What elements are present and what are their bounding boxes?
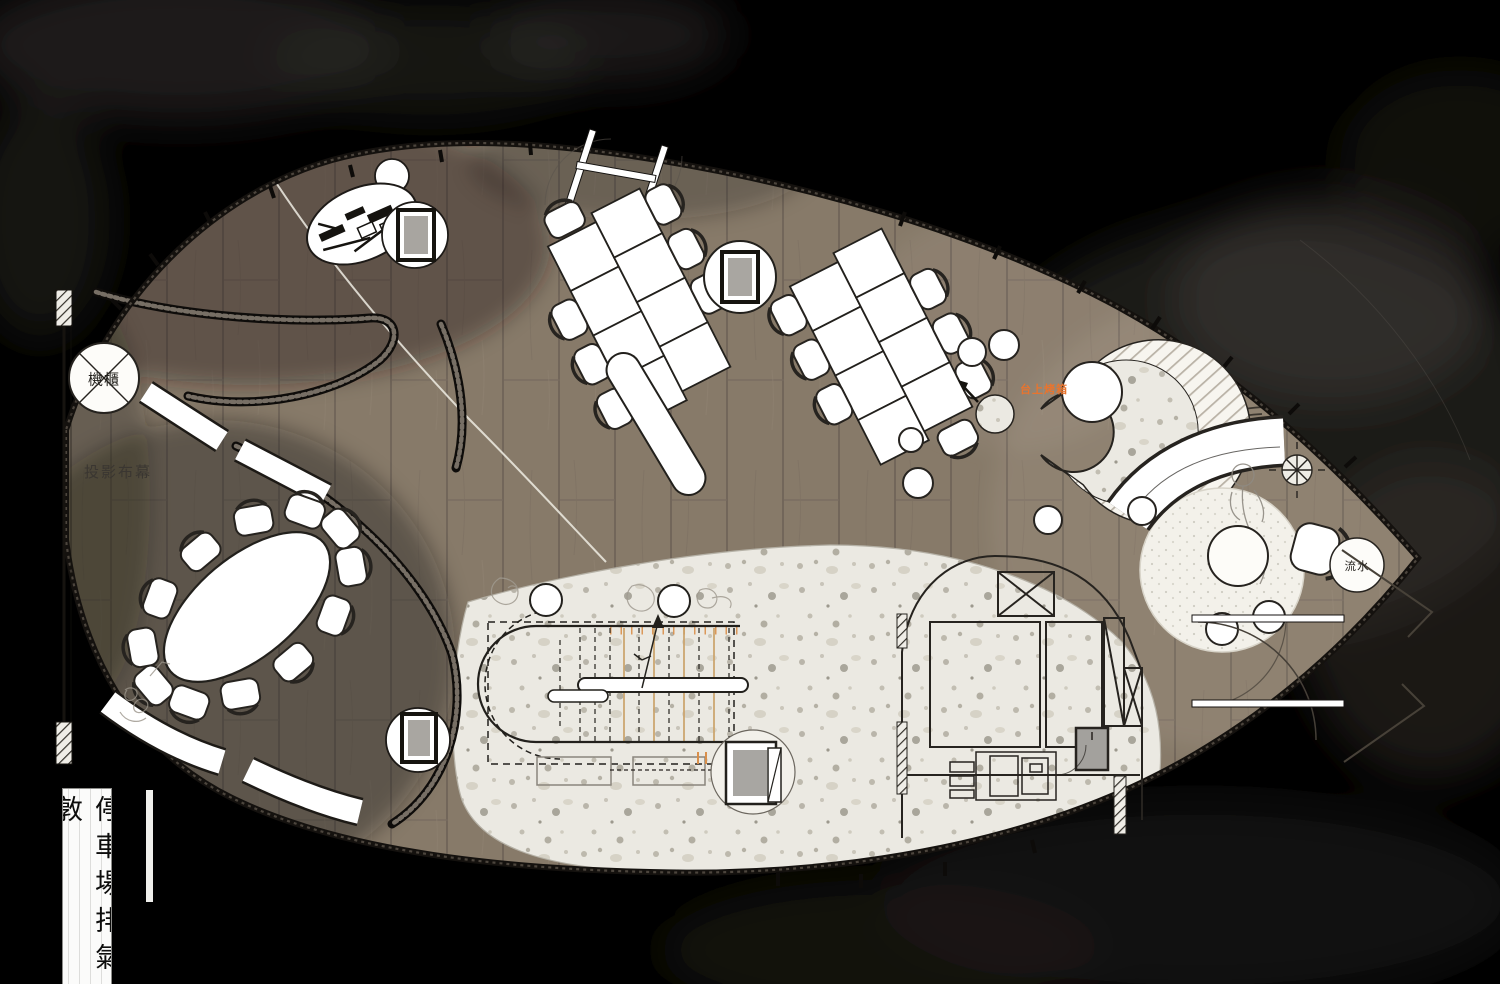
projection-screen-label: 投影布幕	[84, 461, 152, 482]
door-leaf	[1192, 700, 1344, 707]
floor-plan-canvas	[0, 0, 1500, 984]
parking-exhaust-shaft: 停車場排氣敦	[62, 788, 112, 984]
bar-sink	[976, 395, 1014, 433]
display-pad	[386, 708, 450, 772]
door-leaf	[1192, 615, 1344, 622]
shaft-strip	[146, 790, 153, 902]
elevator-pad	[711, 730, 795, 814]
floor-plan-stage: 機櫃 投影布幕 台上烤箱 流水 停車場排氣敦	[0, 0, 1500, 984]
reception-display-table	[382, 202, 448, 268]
parking-exhaust-label: 停車場排氣敦	[62, 795, 112, 984]
equipment-cabinet-label: 機櫃	[88, 369, 120, 390]
water-feature-label: 流水	[1345, 558, 1370, 574]
coffee-table	[1208, 526, 1268, 586]
display-round-table	[704, 241, 776, 313]
countertop-oven-label: 台上烤箱	[1020, 381, 1068, 397]
round-table	[1062, 362, 1122, 422]
